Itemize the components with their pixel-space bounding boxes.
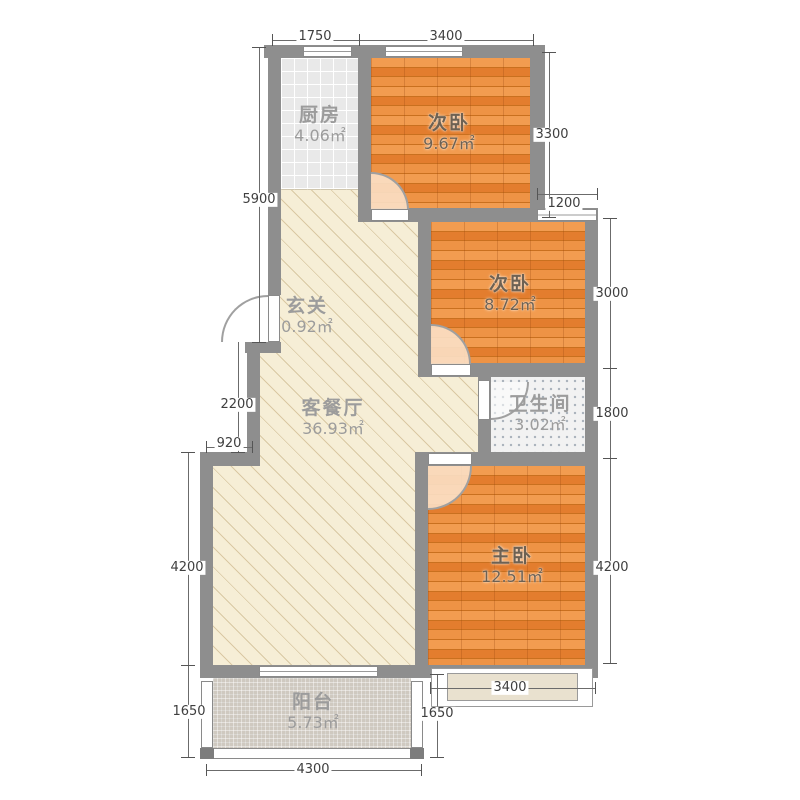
living-area: 36.93㎡ — [301, 419, 364, 440]
dim-tick — [252, 342, 266, 343]
dim-tick — [603, 218, 617, 219]
dim-tick — [359, 34, 360, 46]
dim-right-bedroom-top: 3300 — [533, 128, 570, 142]
dim-top-bedroom: 3400 — [427, 30, 464, 44]
dim-tick — [430, 674, 444, 675]
dim-line-right — [610, 218, 611, 663]
dim-tick — [252, 441, 253, 453]
bedroom-top-area: 9.67㎡ — [423, 134, 475, 155]
dim-tick — [537, 188, 538, 200]
wall-bedroom-mid-left — [418, 222, 431, 377]
bathroom-area: 3.02㎡ — [508, 415, 571, 436]
living-name: 客餐厅 — [301, 398, 364, 419]
wall-right-outer — [585, 208, 598, 678]
dim-right-window: 1200 — [545, 197, 582, 211]
kitchen-label: 厨房 4.06㎡ — [294, 105, 346, 147]
bedroom-mid-door-leaf — [431, 364, 471, 376]
dim-tick — [430, 682, 431, 694]
dim-left-balcony: 1650 — [170, 705, 207, 719]
wall-master-left — [415, 452, 428, 678]
dim-tick — [181, 665, 195, 666]
balcony-sliding-door — [259, 666, 378, 677]
bathroom-door-leaf — [478, 380, 490, 420]
dim-tick — [603, 663, 617, 664]
dim-top-kitchen: 1750 — [296, 30, 333, 44]
entry-door-leaf — [268, 295, 280, 342]
entry-name: 玄关 — [281, 296, 333, 317]
kitchen-window — [303, 46, 352, 57]
dim-tick — [181, 452, 195, 453]
wall-kitchen-divider — [358, 45, 371, 222]
bedroom-mid-label: 次卧 8.72㎡ — [484, 274, 536, 316]
dim-left-entry: 2200 — [218, 398, 255, 412]
dim-tick — [421, 764, 422, 776]
balcony-area: 5.73㎡ — [287, 713, 339, 734]
bathroom-name: 卫生间 — [508, 394, 571, 415]
entry-area: 0.92㎡ — [281, 317, 333, 338]
dim-right-bathroom: 1800 — [593, 407, 630, 421]
dim-tick — [603, 368, 617, 369]
balcony-label: 阳台 5.73㎡ — [287, 692, 339, 734]
dim-tick — [542, 52, 556, 53]
dim-tick — [597, 188, 598, 200]
master-name: 主卧 — [481, 546, 543, 567]
bedroom-top-door-leaf — [371, 209, 409, 221]
master-door-leaf — [428, 453, 472, 465]
dim-tick — [430, 757, 444, 758]
dim-tick — [181, 757, 195, 758]
bedroom-top-window — [385, 46, 463, 57]
kitchen-area: 4.06㎡ — [294, 126, 346, 147]
balcony-corner-right — [410, 748, 424, 759]
dim-left-step: 920 — [215, 437, 244, 451]
living-label: 客餐厅 36.93㎡ — [301, 398, 364, 440]
bedroom-mid-name: 次卧 — [484, 274, 536, 295]
entry-label: 玄关 0.92㎡ — [281, 296, 333, 338]
master-label: 主卧 12.51㎡ — [481, 546, 543, 588]
dim-tick — [252, 47, 266, 48]
bedroom-mid-area: 8.72㎡ — [484, 295, 536, 316]
dim-tick — [206, 441, 207, 453]
dim-tick — [595, 682, 596, 694]
dim-tick — [231, 452, 245, 453]
dim-balcony-width: 4300 — [294, 763, 331, 777]
dim-tick — [603, 458, 617, 459]
dim-bay-width: 3400 — [491, 681, 528, 695]
bedroom-top-label: 次卧 9.67㎡ — [423, 113, 475, 155]
bathroom-label: 卫生间 3.02㎡ — [508, 394, 571, 436]
dim-tick — [272, 34, 273, 46]
kitchen-threshold — [281, 189, 358, 190]
dim-left-living: 4200 — [168, 561, 205, 575]
balcony-corner-left — [200, 748, 214, 759]
dim-left-upper: 5900 — [240, 193, 277, 207]
dim-line-1200 — [537, 194, 597, 195]
balcony-rail-bottom — [213, 748, 411, 759]
dim-tick — [206, 764, 207, 776]
dim-right-master: 4200 — [593, 561, 630, 575]
dim-tick — [533, 34, 534, 46]
master-area: 12.51㎡ — [481, 567, 543, 588]
bedroom-top-name: 次卧 — [423, 113, 475, 134]
dim-balcony-right: 1650 — [418, 707, 455, 721]
floor-plan-page: 厨房 4.06㎡ 次卧 9.67㎡ 次卧 8.72㎡ 玄关 0.92㎡ 客餐厅 … — [0, 0, 800, 800]
balcony-name: 阳台 — [287, 692, 339, 713]
wall-left-upper — [268, 58, 281, 295]
dim-tick — [542, 217, 556, 218]
dim-right-bedroom-mid: 3000 — [593, 287, 630, 301]
kitchen-name: 厨房 — [294, 105, 346, 126]
